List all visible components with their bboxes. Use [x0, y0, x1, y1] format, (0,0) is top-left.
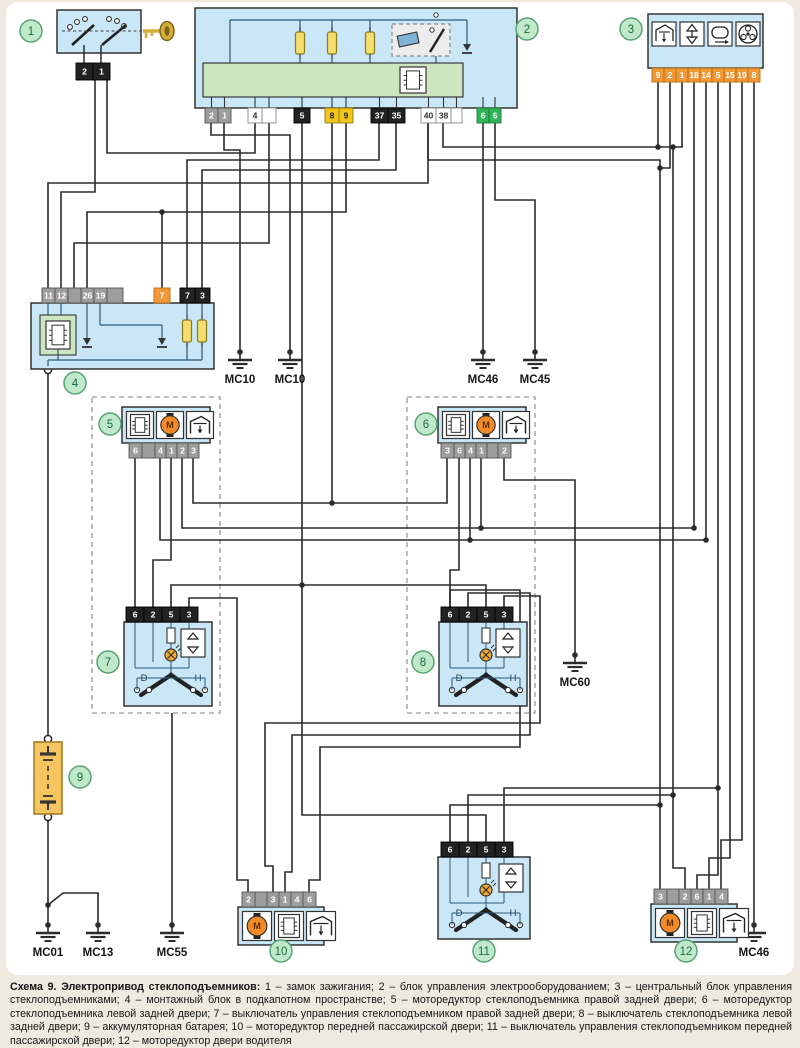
junction-dot [657, 802, 663, 808]
component-badge-10: 10 [270, 940, 292, 962]
pin-label: 2 [246, 895, 251, 905]
chip-body [135, 418, 145, 433]
wire [450, 805, 660, 842]
pin-label: 8 [752, 70, 757, 80]
pin-label: 38 [439, 111, 449, 121]
pin-label: 35 [392, 111, 402, 121]
chip-body [52, 325, 64, 345]
pin-label: 3 [200, 291, 205, 301]
pin-label: 9 [344, 111, 349, 121]
component-6-rear-left-window-motor: M36412 [438, 407, 530, 458]
wiring-diagram-canvas: МС10МС10МС46МС45МС60МС01МС13МС55МС462112… [0, 0, 800, 1037]
motor-letter: M [253, 921, 261, 931]
chip-body [284, 918, 295, 934]
rocker-contact [461, 687, 466, 692]
badge-number: 3 [628, 24, 634, 36]
component-5-rear-right-window-motor: M64123 [122, 407, 214, 458]
rocker-contact [461, 922, 466, 927]
pin-label: 7 [160, 291, 165, 301]
rocker-contact [190, 687, 195, 692]
pin-label: 1 [479, 446, 484, 456]
pin-label: 2 [502, 446, 507, 456]
badge-number: 4 [72, 378, 79, 390]
pin-label: 1 [222, 111, 227, 121]
badge-number: 6 [423, 419, 429, 431]
relay-contact [434, 13, 438, 17]
ground-point: МС60 [560, 652, 591, 689]
pin-label: 8 [330, 111, 335, 121]
pin-label: 37 [375, 111, 385, 121]
ground-point: МС45 [520, 349, 551, 386]
component-1-ignition-switch: 21 [57, 10, 174, 80]
pin-label: 3 [658, 892, 663, 902]
wire [660, 82, 670, 168]
wire [224, 123, 240, 352]
junction-dot [691, 525, 697, 531]
pin-label: 3 [271, 895, 276, 905]
junction-dot [670, 792, 676, 798]
pin-label: 2 [466, 845, 471, 855]
wire [495, 123, 535, 352]
resistor [482, 628, 490, 643]
fuse [366, 32, 375, 54]
ground-point: МС01 [33, 922, 64, 959]
junction-dot [657, 165, 663, 171]
junction-dot [670, 144, 676, 150]
badge-number: 12 [680, 946, 693, 958]
wire [153, 458, 171, 607]
pin-label: 14 [701, 70, 711, 80]
pin-label: 3 [187, 610, 192, 620]
connector-pin [68, 288, 81, 303]
badge-number: 5 [107, 419, 113, 431]
component-3-central-window-control-unit: 9211814515198 [648, 14, 763, 82]
connector-pin [487, 443, 498, 458]
relay-contact [430, 28, 434, 32]
wire [673, 82, 682, 147]
pin-label: 4 [719, 892, 724, 902]
component-badge-5: 5 [99, 413, 121, 435]
fan-hub [746, 32, 749, 35]
wire [48, 893, 98, 925]
wire [428, 123, 660, 889]
contact-circle [75, 20, 80, 25]
junction-dot [478, 525, 484, 531]
fuse [198, 320, 207, 342]
connector-pin [451, 108, 462, 123]
ground-label: МС13 [83, 947, 114, 959]
badge-number: 9 [77, 772, 83, 784]
junction-dot [467, 537, 473, 543]
pin-label: 12 [57, 291, 67, 301]
ground-point: МС10 [225, 349, 256, 386]
fuse [183, 320, 192, 342]
badge-number: 10 [275, 946, 288, 958]
junction-dot [655, 144, 661, 150]
pin-label: 2 [82, 67, 87, 77]
pin-label: 5 [484, 610, 489, 620]
pin-label: 11 [44, 291, 53, 301]
contact-circle [115, 19, 120, 24]
component-7-rear-right-window-switch: DH6253 [124, 607, 212, 706]
pin-label: 2 [151, 610, 156, 620]
wire [193, 458, 447, 503]
pin-label: 6 [481, 111, 486, 121]
pin-label: 2 [209, 111, 214, 121]
component-badge-12: 12 [675, 940, 697, 962]
resistor [167, 628, 175, 643]
motor-letter: M [482, 420, 490, 430]
diagram-caption: Схема 9. Электропривод стеклоподъемников… [10, 981, 792, 1048]
pin-label: 4 [253, 111, 258, 121]
fuse [328, 32, 337, 54]
pin-label: 1 [707, 892, 712, 902]
pin-label: 2 [668, 70, 673, 80]
pin-label: 6 [133, 446, 138, 456]
pin-label: 19 [737, 70, 747, 80]
pin-label: 1 [283, 895, 288, 905]
chip-body [407, 71, 420, 89]
pin-label: 6 [448, 845, 453, 855]
pin-label: 6 [307, 895, 312, 905]
pin-label: 2 [180, 446, 185, 456]
wire [87, 123, 346, 288]
pin-label: 5 [484, 845, 489, 855]
ground-label: МС01 [33, 947, 64, 959]
badge-number: 8 [420, 657, 426, 669]
pin-label: 7 [185, 291, 190, 301]
wire [202, 123, 396, 288]
wire [187, 123, 379, 288]
ground-label: МС60 [560, 677, 591, 689]
rocker-contact [505, 922, 510, 927]
junction-dot [715, 785, 721, 791]
ground-point: МС13 [83, 922, 114, 959]
pin-label: 3 [191, 446, 196, 456]
pin-label: 6 [448, 610, 453, 620]
pin-label: 3 [502, 845, 507, 855]
wire [48, 123, 428, 288]
component-4-underhood-fuse-box: 11122619773 [31, 288, 214, 369]
motor-letter: M [166, 420, 174, 430]
component-2-electrical-control-unit: 2145893735403866 [195, 8, 517, 123]
ground-label: МС10 [275, 374, 306, 386]
component-10-front-passenger-window-motor: M23146 [238, 892, 336, 945]
ground-label: МС55 [157, 947, 188, 959]
connector-pin [107, 288, 123, 303]
pin-label: 5 [716, 70, 721, 80]
resistor [482, 863, 490, 878]
badge-number: 1 [28, 26, 34, 38]
motor-letter: M [666, 918, 674, 928]
pin-label: 15 [725, 70, 735, 80]
ground-label: МС45 [520, 374, 551, 386]
rocker-contact [505, 687, 510, 692]
pin-label: 1 [99, 67, 104, 77]
wire [302, 585, 486, 607]
connector-pin [262, 108, 276, 123]
contact-circle [68, 25, 73, 30]
connector-pin [667, 889, 679, 904]
chip-body [451, 418, 461, 433]
badge-number: 7 [105, 657, 111, 669]
pin-label: 6 [133, 610, 138, 620]
pin-label: 9 [656, 70, 661, 80]
pin-label: 19 [96, 291, 106, 301]
pin-label: 3 [445, 446, 450, 456]
wire [709, 82, 730, 889]
pin-label: 2 [466, 610, 471, 620]
connector-pin [142, 443, 155, 458]
pin-label: 4 [468, 446, 473, 456]
chip-body [697, 915, 708, 931]
ground-label: МС46 [739, 947, 770, 959]
pin-label: 6 [493, 111, 498, 121]
component-badge-11: 11 [473, 940, 495, 962]
ground-label: МС10 [225, 374, 256, 386]
wire [697, 82, 718, 889]
pin-label: 1 [680, 70, 685, 80]
junction-dot [45, 902, 51, 908]
wire [182, 458, 694, 528]
component-12-driver-door-window-motor: M32614 [651, 889, 749, 942]
rocker-contact [146, 687, 151, 692]
pin-label: 40 [424, 111, 434, 121]
component-badge-8: 8 [412, 651, 434, 673]
component-badge-6: 6 [415, 413, 437, 435]
wire [61, 80, 95, 288]
component-badge-2: 2 [516, 18, 538, 40]
pin-label: 1 [169, 446, 174, 456]
pin-label: 3 [502, 610, 507, 620]
caption-title: Схема 9. Электропривод стеклоподъемников… [10, 981, 260, 993]
junction-dot [159, 209, 165, 215]
component-badge-4: 4 [64, 372, 86, 394]
pin-label: 5 [169, 610, 174, 620]
pin-label: 4 [295, 895, 300, 905]
junction-dot [703, 537, 709, 543]
wire [443, 123, 685, 889]
badge-number: 11 [478, 946, 490, 958]
fuse [296, 32, 305, 54]
junction-dot [329, 500, 335, 506]
schematic-page: { "caption": { "bold": "Схема 9. Электро… [0, 0, 800, 1037]
pin-label: 6 [457, 446, 462, 456]
pin-label: 6 [695, 892, 700, 902]
wire [504, 788, 718, 842]
ground-point: МС10 [275, 349, 306, 386]
component-badge-7: 7 [97, 651, 119, 673]
contact-circle [83, 17, 88, 22]
pin-label: 26 [83, 291, 93, 301]
component-badge-9: 9 [69, 766, 91, 788]
contact-circle [107, 17, 112, 22]
ground-label: МС46 [468, 374, 499, 386]
wire [468, 795, 673, 842]
pin-label: 18 [689, 70, 699, 80]
ground-point: МС55 [157, 922, 188, 959]
pin-label: 2 [683, 892, 688, 902]
component-11-front-passenger-window-switch: DH6253 [438, 842, 530, 939]
pin-label: 4 [158, 446, 163, 456]
pin-label: 5 [300, 111, 305, 121]
ground-point: МС46 [468, 349, 499, 386]
badge-number: 2 [524, 24, 530, 36]
key-head-hole [165, 26, 170, 36]
junction-dot [299, 582, 305, 588]
component-badge-3: 3 [620, 18, 642, 40]
component-8-rear-left-window-switch: DH6253 [439, 607, 527, 706]
wire [211, 123, 290, 352]
wire [721, 82, 742, 889]
connector-pin [255, 892, 267, 907]
component-9-battery [34, 742, 62, 814]
component-badge-1: 1 [20, 20, 42, 42]
